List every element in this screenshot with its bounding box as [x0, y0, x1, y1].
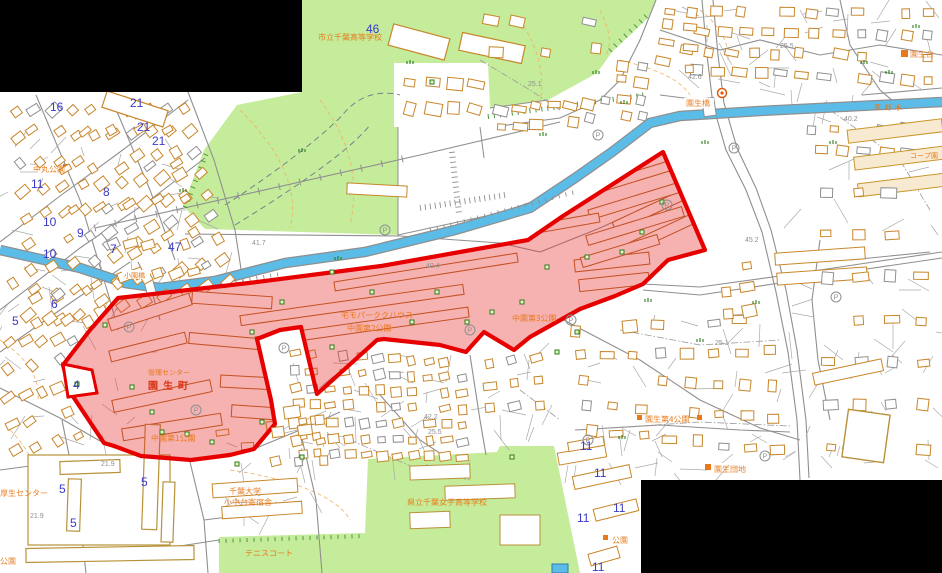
svg-text:47: 47	[168, 240, 182, 254]
svg-text:25.5: 25.5	[780, 43, 794, 50]
svg-text:16: 16	[50, 100, 64, 114]
svg-text:P: P	[834, 295, 839, 302]
svg-text:P: P	[383, 228, 388, 235]
svg-text:41.7: 41.7	[252, 240, 266, 247]
svg-text:25.1: 25.1	[528, 81, 542, 88]
svg-text:8: 8	[103, 185, 110, 199]
svg-text:10: 10	[43, 215, 57, 229]
svg-text:11: 11	[613, 501, 626, 515]
svg-text:P: P	[468, 328, 473, 335]
svg-text:4: 4	[73, 378, 80, 392]
svg-text:P: P	[763, 454, 768, 461]
svg-text:P: P	[665, 203, 670, 210]
svg-text:21: 21	[152, 134, 166, 148]
svg-text:40.4: 40.4	[426, 263, 440, 270]
svg-text:5: 5	[70, 516, 77, 530]
svg-text:10: 10	[43, 247, 57, 261]
svg-text:25.5: 25.5	[428, 429, 442, 436]
svg-text:P: P	[569, 318, 574, 325]
svg-text:11: 11	[594, 466, 607, 480]
svg-text:P: P	[282, 346, 287, 353]
svg-text:P: P	[732, 146, 737, 153]
svg-text:21: 21	[130, 96, 144, 110]
svg-text:P: P	[127, 325, 132, 332]
svg-text:9: 9	[77, 226, 84, 240]
svg-text:P: P	[194, 408, 199, 415]
svg-text:46: 46	[366, 22, 380, 36]
svg-text:45.2: 45.2	[745, 237, 759, 244]
svg-text:11: 11	[580, 439, 593, 453]
svg-text:21.9: 21.9	[101, 461, 115, 468]
svg-text:11: 11	[577, 511, 590, 525]
svg-text:11: 11	[592, 560, 605, 573]
svg-text:7: 7	[110, 242, 117, 256]
svg-text:P: P	[596, 133, 601, 140]
svg-text:6: 6	[51, 297, 58, 311]
svg-text:5: 5	[141, 475, 148, 489]
svg-text:5: 5	[12, 314, 19, 328]
svg-text:40.2: 40.2	[844, 116, 858, 123]
svg-text:42.6: 42.6	[688, 74, 702, 81]
svg-text:42.2: 42.2	[424, 414, 438, 421]
svg-text:11: 11	[31, 177, 44, 191]
svg-text:21: 21	[137, 120, 151, 134]
svg-text:25.1: 25.1	[715, 340, 729, 347]
svg-text:5: 5	[59, 482, 66, 496]
svg-text:21.9: 21.9	[30, 513, 44, 520]
